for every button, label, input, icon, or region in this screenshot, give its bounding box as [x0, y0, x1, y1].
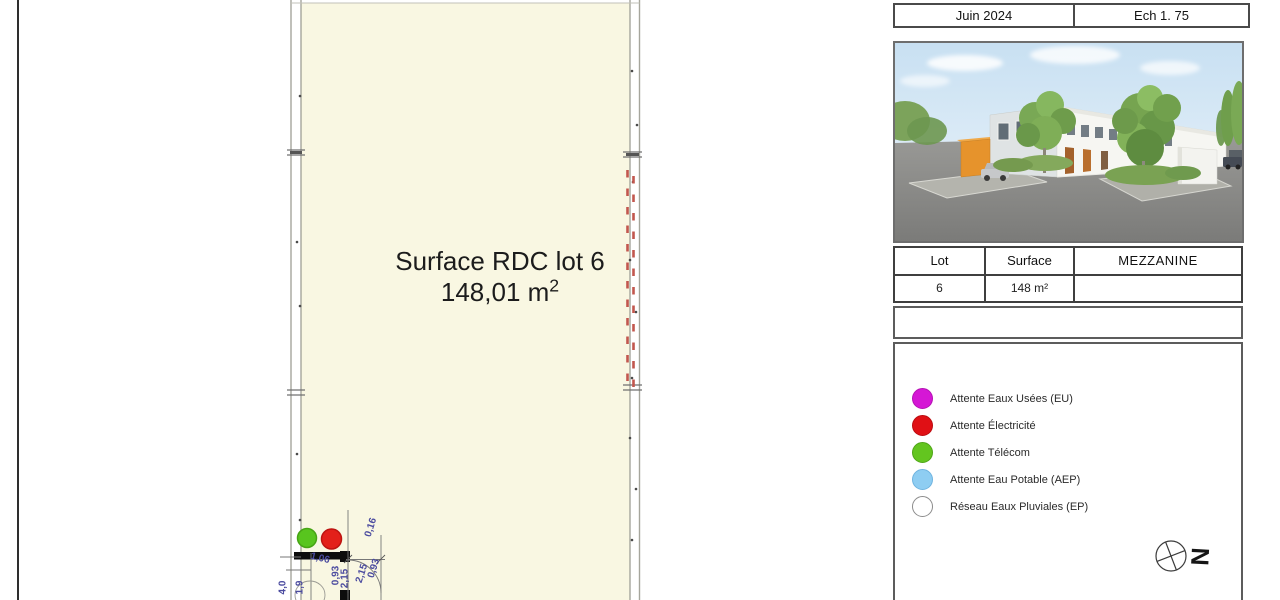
lot-table: Lot Surface MEZZANINE 6 148 m² — [893, 246, 1243, 303]
cell-surface: 148 m² — [986, 276, 1075, 302]
dimension-label: 2,15 — [340, 565, 351, 593]
legend-label: Attente Télécom — [950, 447, 1030, 459]
cell-mezzanine — [1075, 276, 1241, 302]
dimension-label: 0,16 — [361, 512, 380, 542]
legend-item: Réseau Eaux Pluviales (EP) — [910, 493, 1230, 520]
header-surface: Surface — [986, 248, 1075, 274]
dimension-label: 1,9 — [295, 574, 306, 600]
legend-item: Attente Eau Potable (AEP) — [910, 466, 1230, 493]
legend: Attente Eaux Usées (EU)Attente Électrici… — [910, 385, 1230, 520]
dimension-labels-layer: 4,01,91,060,932,150,162,150,93 — [0, 0, 700, 600]
legend-item: Attente Télécom — [910, 439, 1230, 466]
eaux-usees-dot-icon — [912, 388, 933, 409]
cell-lot: 6 — [895, 276, 986, 302]
dimension-label: 0,93 — [364, 553, 383, 583]
north-indicator: N — [1150, 536, 1230, 586]
legend-label: Attente Eaux Usées (EU) — [950, 393, 1073, 405]
dimension-label: 4,0 — [278, 574, 289, 600]
north-letter: N — [1184, 547, 1214, 567]
title-block: Juin 2024 Ech 1. 75 — [893, 3, 1250, 28]
legend-label: Attente Eau Potable (AEP) — [950, 474, 1080, 486]
legend-item: Attente Électricité — [910, 412, 1230, 439]
header-lot: Lot — [895, 248, 986, 274]
date-cell: Juin 2024 — [895, 5, 1075, 26]
table-header-row: Lot Surface MEZZANINE — [895, 248, 1241, 276]
legend-item: Attente Eaux Usées (EU) — [910, 385, 1230, 412]
legend-label: Réseau Eaux Pluviales (EP) — [950, 501, 1088, 513]
building-scene — [895, 43, 1242, 241]
legend-label: Attente Électricité — [950, 420, 1036, 432]
table-row: 6 148 m² — [895, 276, 1241, 302]
header-mezzanine: MEZZANINE — [1075, 248, 1241, 274]
eaux-pluviales-dot-icon — [912, 496, 933, 517]
drawing-sheet: Surface RDC lot 6 148,01 m2 4,01,91,060,… — [0, 0, 1280, 600]
building-render-image — [893, 41, 1244, 243]
electricite-dot-icon — [912, 415, 933, 436]
eau-potable-dot-icon — [912, 469, 933, 490]
telecom-dot-icon — [912, 442, 933, 463]
empty-info-box — [893, 306, 1243, 339]
scale-cell: Ech 1. 75 — [1075, 5, 1248, 26]
